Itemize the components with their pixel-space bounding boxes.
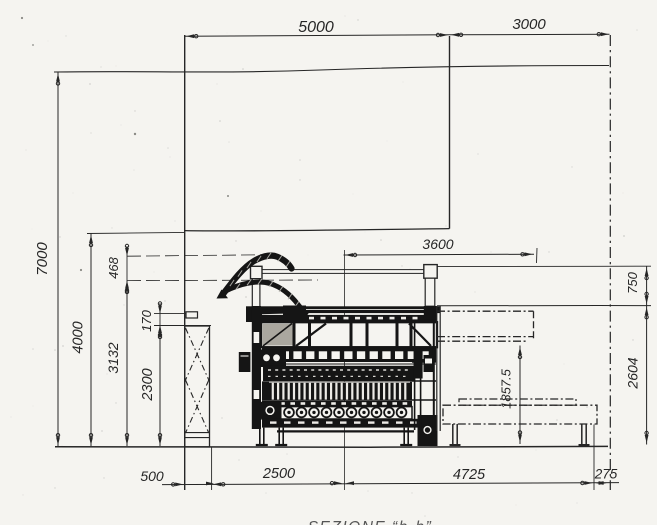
- svg-text:1857.5: 1857.5: [499, 368, 514, 409]
- svg-text:170: 170: [139, 309, 154, 331]
- svg-text:2300: 2300: [140, 368, 156, 401]
- svg-text:2500: 2500: [262, 466, 295, 482]
- svg-text:4725: 4725: [453, 467, 486, 483]
- svg-text:750: 750: [625, 271, 640, 293]
- svg-text:3132: 3132: [105, 342, 121, 373]
- svg-text:468: 468: [106, 256, 121, 278]
- svg-text:4000: 4000: [71, 321, 87, 353]
- svg-text:3000: 3000: [512, 16, 546, 33]
- svg-text:5000: 5000: [298, 19, 334, 36]
- svg-text:275: 275: [594, 467, 618, 482]
- svg-text:7000: 7000: [34, 242, 51, 276]
- svg-text:SEZIONE “b-b”: SEZIONE “b-b”: [308, 519, 433, 525]
- svg-text:2604: 2604: [625, 357, 641, 389]
- svg-text:500: 500: [140, 468, 164, 484]
- svg-text:3600: 3600: [422, 236, 453, 252]
